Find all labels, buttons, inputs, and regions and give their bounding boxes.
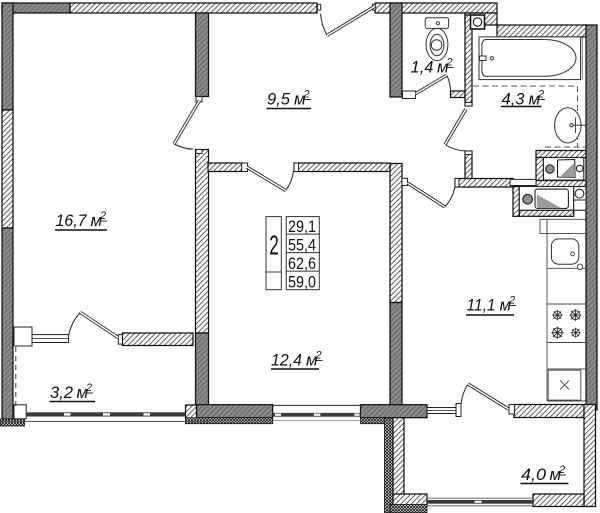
svg-text:2: 2 <box>508 295 515 307</box>
svg-text:12,4: 12,4 <box>271 351 302 370</box>
svg-text:4,0: 4,0 <box>521 465 547 484</box>
svg-text:1,4: 1,4 <box>411 58 434 77</box>
svg-text:55,4: 55,4 <box>288 236 316 255</box>
svg-text:4,3: 4,3 <box>502 90 526 109</box>
svg-text:2: 2 <box>446 57 453 69</box>
svg-text:2: 2 <box>85 382 92 394</box>
svg-text:2: 2 <box>99 210 106 222</box>
svg-text:59,0: 59,0 <box>288 273 316 292</box>
svg-text:2: 2 <box>303 89 310 101</box>
svg-text:3,2: 3,2 <box>50 383 74 402</box>
svg-text:2: 2 <box>269 230 279 261</box>
svg-text:2: 2 <box>537 89 544 101</box>
svg-text:11,1: 11,1 <box>467 296 496 315</box>
svg-text:29,1: 29,1 <box>288 217 316 236</box>
svg-text:9,5: 9,5 <box>267 90 291 109</box>
svg-text:2: 2 <box>558 464 565 476</box>
svg-text:16,7: 16,7 <box>56 211 88 230</box>
svg-text:62,6: 62,6 <box>288 254 316 273</box>
svg-text:2: 2 <box>315 350 322 362</box>
